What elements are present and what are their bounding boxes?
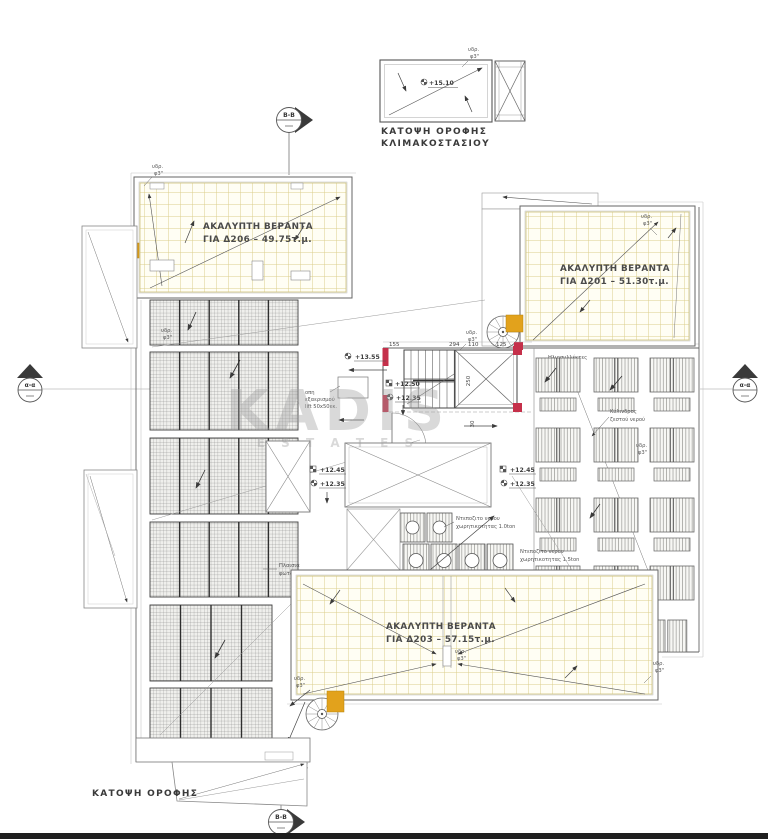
section-aa-label: α-α xyxy=(740,382,751,389)
pv-band-4 xyxy=(150,522,298,597)
drain-size: φ3" xyxy=(643,221,652,227)
elevation-12-45: +12.45 xyxy=(510,467,535,474)
roof-drain-box xyxy=(291,271,310,280)
left-balcony-lower xyxy=(84,470,137,608)
stairwell-shaft-crossed xyxy=(495,61,525,121)
elevation-12-45: +12.45 xyxy=(320,467,345,474)
drain-size: φ3" xyxy=(163,335,172,341)
tank-1-0-label-line2: χωρητικοτητας 1.0ton xyxy=(456,524,515,530)
drain-label: υδρ. xyxy=(468,47,479,53)
drain-label: υδρ. xyxy=(294,676,305,682)
drain-label: υδρ. xyxy=(641,214,652,220)
roof-opening-lower xyxy=(347,509,400,570)
elevation-12-35: +12.35 xyxy=(510,481,535,488)
veranda-d201-label-line1: ΑΚΑΛΥΠΤΗ ΒΕΡΑΝΤΑ xyxy=(560,264,670,274)
veranda-d206-label-line2: ΓΙΑ Δ206 – 49.75τ.μ. xyxy=(203,235,312,245)
tank-1-5-label-line2: χωρητικοτητας 1.5ton xyxy=(520,557,579,563)
level-symbol xyxy=(421,79,427,85)
roof-opening-center xyxy=(345,443,491,507)
drain-label: υδρ. xyxy=(152,164,163,170)
pv-band-1 xyxy=(150,300,298,345)
footer-bar xyxy=(0,833,768,839)
drain-size: φ3" xyxy=(154,171,163,177)
veranda-d206: ΑΚΑΛΥΠΤΗ ΒΕΡΑΝΤΑ ΓΙΑ Δ206 – 49.75τ.μ. υδ… xyxy=(134,164,352,298)
veranda-d203-label-line2: ΓΙΑ Δ203 – 57.15τ.μ. xyxy=(386,635,495,645)
dim-30: 30 xyxy=(470,420,476,427)
stairwell-elevation: +15.10 xyxy=(429,80,454,87)
left-balcony-upper xyxy=(82,226,137,348)
stair-landing-orange xyxy=(506,315,523,332)
cylinder-label-line1: Κύλινδρος xyxy=(610,408,637,415)
drain-size: φ3" xyxy=(638,450,647,456)
lift-shaft xyxy=(455,350,517,408)
drain-label: υδρ. xyxy=(636,443,647,449)
wall-segment-red xyxy=(513,403,522,412)
roof-plan-drawing: +15.10 υδρ. φ3" ΚΑΤΟΨΗ ΟΡΟΦΗΣ ΚΛΙΜΑΚΟΣΤΑ… xyxy=(0,0,768,839)
roof-opening-left xyxy=(266,441,310,512)
section-bb-label: Β-Β xyxy=(275,814,287,821)
watermark: KADIS E S T A T E S xyxy=(226,379,450,450)
drain-size: φ3" xyxy=(296,683,305,689)
drain-size: φ3" xyxy=(457,656,466,662)
drain-label: υδρ. xyxy=(161,328,172,334)
dim-250: 250 xyxy=(466,375,472,386)
veranda-d206-label-line1: ΑΚΑΛΥΠΤΗ ΒΕΡΑΝΤΑ xyxy=(203,222,313,232)
roof-plan-sheet: +15.10 υδρ. φ3" ΚΑΤΟΨΗ ΟΡΟΦΗΣ ΚΛΙΜΑΚΟΣΤΑ… xyxy=(0,0,768,839)
wall-segment-red xyxy=(513,346,522,355)
section-bb-label: Β-Β xyxy=(283,112,295,119)
drain-label: υδρ. xyxy=(466,330,477,336)
watermark-name: KADIS xyxy=(226,379,450,444)
roof-drain-box xyxy=(252,261,263,280)
section-aa-label: α-α xyxy=(25,382,36,389)
dim-294: 294 xyxy=(449,342,460,348)
pv-band-5 xyxy=(150,605,272,681)
pv-label-line1: Πλαισια xyxy=(279,563,300,569)
stairwell-title-line2: ΚΛΙΜΑΚΟΣΤΑΣΙΟΥ xyxy=(381,139,490,149)
level-symbol xyxy=(345,353,351,359)
veranda-d203-label-line1: ΑΚΑΛΥΠΤΗ ΒΕΡΑΝΤΑ xyxy=(386,622,496,632)
drain-size: φ3" xyxy=(655,668,664,674)
stairwell-title-line1: ΚΑΤΟΨΗ ΟΡΟΦΗΣ xyxy=(381,127,487,137)
roof-drain-box xyxy=(443,646,451,666)
drain-label: υδρ. xyxy=(653,661,664,667)
elevation-13-55: +13.55 xyxy=(355,354,380,361)
pv-band-6 xyxy=(150,688,272,740)
tank-1-5-label-line1: Ντεποζιτο νερου xyxy=(520,549,564,555)
watermark-subtitle: E S T A T E S xyxy=(257,436,419,450)
dim-125: 125 xyxy=(496,342,507,348)
wall-segment-red xyxy=(383,348,389,366)
stair-landing-orange xyxy=(327,691,344,712)
elevation-12-35: +12.35 xyxy=(320,481,345,488)
dim-155: 155 xyxy=(389,342,400,348)
veranda-d201-label-line2: ΓΙΑ Δ201 – 51.30τ.μ. xyxy=(560,277,669,287)
drain-label: υδρ. xyxy=(455,649,466,655)
drain-size: φ3" xyxy=(468,337,477,343)
veranda-d201: ΑΚΑΛΥΠΤΗ ΒΕΡΑΝΤΑ ΓΙΑ Δ201 – 51.30τ.μ. υδ… xyxy=(482,193,695,350)
drain-size: φ3" xyxy=(470,54,479,60)
roof-drain-box xyxy=(150,260,174,271)
main-plan-title: ΚΑΤΟΨΗ ΟΡΟΦΗΣ xyxy=(92,789,198,799)
cylinder-label-line2: ζεστού νερού xyxy=(610,416,645,423)
